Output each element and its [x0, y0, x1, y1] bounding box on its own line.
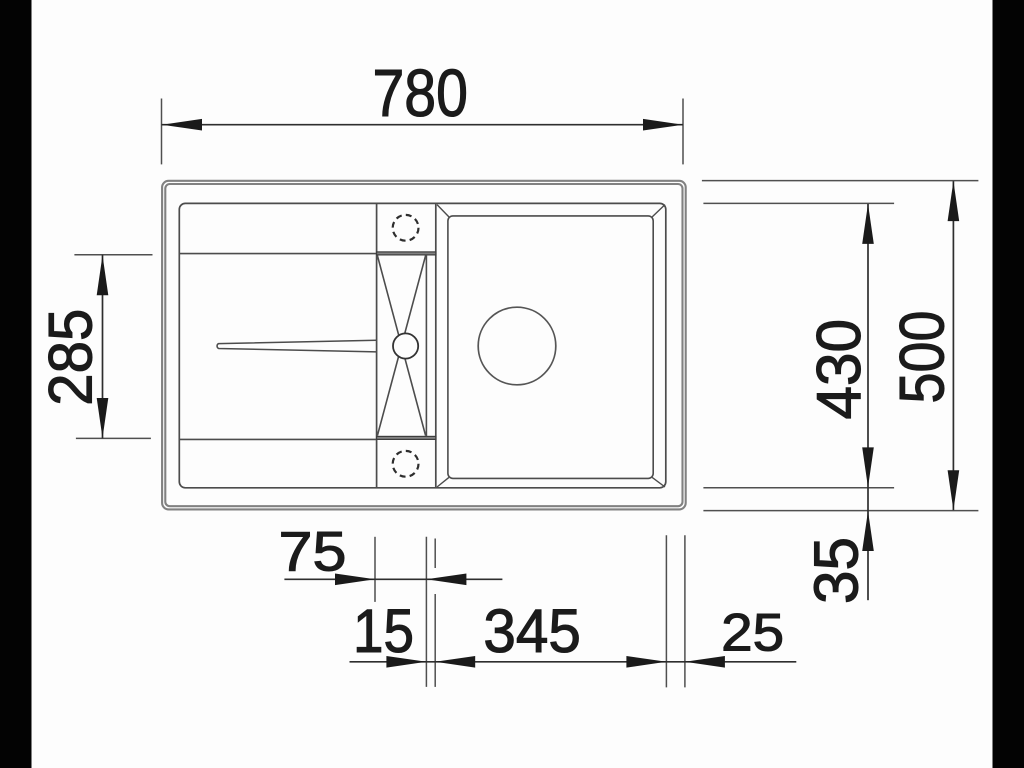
svg-text:35: 35: [803, 537, 872, 604]
svg-text:500: 500: [888, 310, 958, 403]
svg-text:345: 345: [483, 597, 581, 665]
svg-text:430: 430: [805, 319, 874, 420]
svg-text:75: 75: [279, 519, 347, 582]
svg-text:780: 780: [372, 56, 468, 131]
svg-text:285: 285: [36, 309, 104, 406]
svg-text:25: 25: [721, 603, 784, 662]
svg-text:15: 15: [353, 597, 414, 665]
